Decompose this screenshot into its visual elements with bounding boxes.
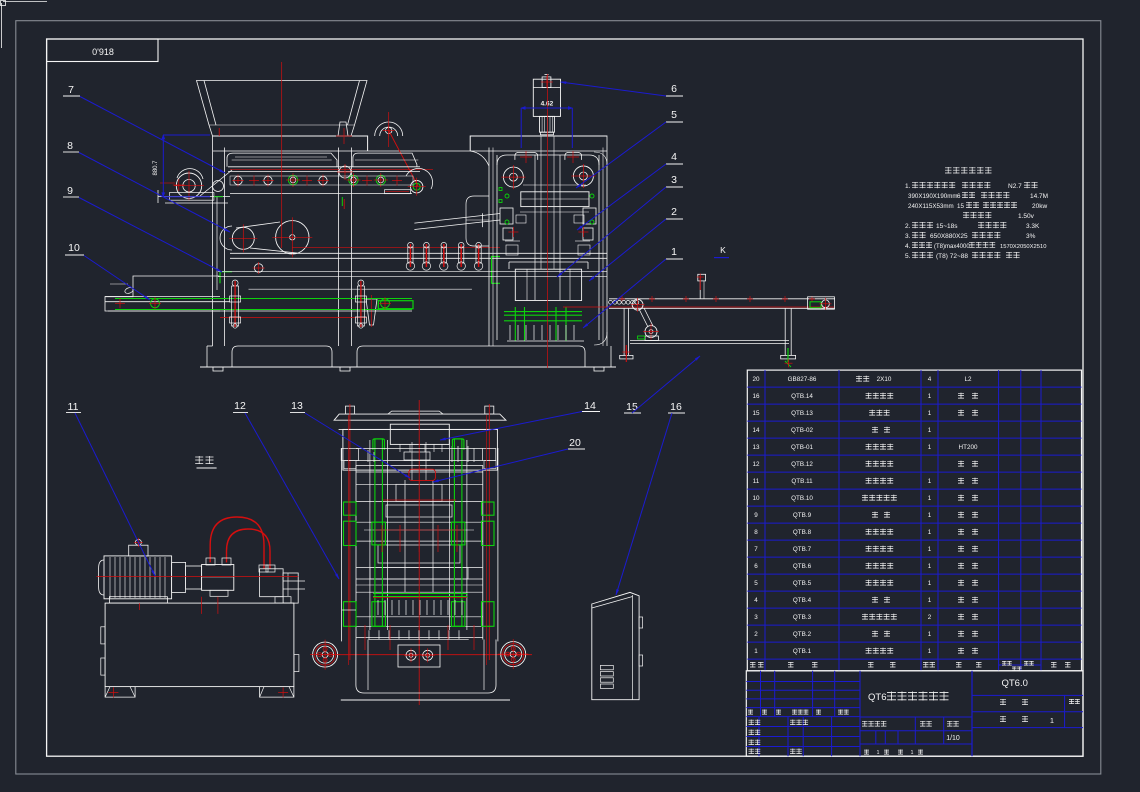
svg-text:4: 4 bbox=[671, 151, 677, 163]
svg-text:1.50v: 1.50v bbox=[1018, 213, 1035, 220]
svg-text:1: 1 bbox=[928, 444, 932, 451]
svg-text:2: 2 bbox=[928, 614, 932, 621]
svg-text:15: 15 bbox=[752, 410, 760, 417]
svg-text:2: 2 bbox=[754, 631, 758, 638]
svg-text:2.: 2. bbox=[905, 223, 911, 230]
svg-text:HT200: HT200 bbox=[959, 444, 978, 451]
svg-text:(T8) 72~88: (T8) 72~88 bbox=[936, 253, 968, 260]
svg-text:10: 10 bbox=[752, 495, 760, 502]
svg-text:3.3K: 3.3K bbox=[1026, 223, 1040, 230]
svg-text:QTB.6: QTB.6 bbox=[793, 563, 812, 570]
svg-text:QT6.0: QT6.0 bbox=[1001, 678, 1027, 689]
svg-text:QTB-02: QTB-02 bbox=[791, 427, 814, 434]
svg-text:1: 1 bbox=[928, 563, 932, 570]
svg-text:16: 16 bbox=[752, 393, 760, 400]
svg-text:QTB.10: QTB.10 bbox=[791, 495, 813, 502]
svg-text:1/10: 1/10 bbox=[946, 735, 960, 742]
svg-text:4.: 4. bbox=[905, 243, 911, 250]
svg-text:QTB.3: QTB.3 bbox=[793, 614, 812, 621]
svg-text:K: K bbox=[720, 245, 726, 255]
svg-text:6: 6 bbox=[957, 193, 961, 200]
svg-text:7: 7 bbox=[754, 546, 758, 553]
svg-text:20: 20 bbox=[752, 376, 760, 383]
svg-text:1: 1 bbox=[928, 580, 932, 587]
svg-text:1: 1 bbox=[928, 393, 932, 400]
svg-text:8: 8 bbox=[67, 140, 73, 152]
svg-text:10: 10 bbox=[68, 242, 80, 254]
svg-text:1: 1 bbox=[911, 750, 914, 756]
svg-text:QTB.1: QTB.1 bbox=[793, 648, 812, 655]
svg-text:8: 8 bbox=[754, 529, 758, 536]
svg-text:15: 15 bbox=[626, 401, 638, 413]
svg-text:14: 14 bbox=[752, 427, 760, 434]
svg-text:14.7M: 14.7M bbox=[1030, 193, 1048, 200]
svg-text:1: 1 bbox=[928, 546, 932, 553]
svg-text:9: 9 bbox=[754, 512, 758, 519]
svg-text:1: 1 bbox=[928, 410, 932, 417]
svg-text:1: 1 bbox=[928, 648, 932, 655]
svg-text:QTB.12: QTB.12 bbox=[791, 461, 813, 468]
svg-text:880.7: 880.7 bbox=[153, 160, 159, 176]
svg-text:15~18s: 15~18s bbox=[936, 223, 958, 230]
svg-text:15: 15 bbox=[957, 203, 964, 210]
svg-text:(T8)max4000: (T8)max4000 bbox=[934, 244, 970, 250]
svg-text:3%: 3% bbox=[1026, 233, 1036, 240]
svg-text:240X115X53mm: 240X115X53mm bbox=[908, 203, 954, 210]
svg-text:QTB.9: QTB.9 bbox=[793, 512, 812, 519]
svg-text:1: 1 bbox=[928, 597, 932, 604]
svg-text:3: 3 bbox=[671, 174, 677, 186]
svg-text:13: 13 bbox=[291, 400, 303, 412]
svg-text:2: 2 bbox=[671, 206, 677, 218]
svg-text:650X880X25: 650X880X25 bbox=[930, 233, 968, 240]
svg-text:3: 3 bbox=[754, 614, 758, 621]
svg-text:GB827-86: GB827-86 bbox=[788, 376, 817, 383]
svg-text:1: 1 bbox=[928, 495, 932, 502]
svg-text:20: 20 bbox=[569, 437, 581, 449]
svg-text:14: 14 bbox=[584, 400, 596, 412]
svg-text:2X10: 2X10 bbox=[877, 376, 892, 383]
svg-text:4: 4 bbox=[754, 597, 758, 604]
svg-text:6: 6 bbox=[671, 83, 677, 95]
svg-text:N2.7: N2.7 bbox=[1008, 183, 1022, 190]
svg-text:5.: 5. bbox=[905, 253, 911, 260]
svg-text:1: 1 bbox=[671, 246, 677, 258]
svg-text:12: 12 bbox=[752, 461, 760, 468]
svg-text:QTB.8: QTB.8 bbox=[793, 529, 812, 536]
svg-text:QTB.11: QTB.11 bbox=[791, 478, 813, 485]
svg-text:QTB.5: QTB.5 bbox=[793, 580, 812, 587]
svg-text:11: 11 bbox=[753, 478, 760, 485]
svg-text:6: 6 bbox=[754, 563, 758, 570]
svg-text:13: 13 bbox=[752, 444, 760, 451]
svg-text:5: 5 bbox=[671, 109, 677, 121]
svg-text:1570X2050X2510: 1570X2050X2510 bbox=[1000, 244, 1046, 250]
svg-text:390X190X190mm: 390X190X190mm bbox=[908, 193, 958, 200]
svg-text:1: 1 bbox=[928, 512, 932, 519]
svg-text:0'918: 0'918 bbox=[92, 47, 114, 57]
svg-text:12: 12 bbox=[234, 400, 246, 412]
svg-text:20kw: 20kw bbox=[1032, 203, 1047, 210]
svg-text:QTB.14: QTB.14 bbox=[791, 393, 813, 400]
svg-text:QTB.7: QTB.7 bbox=[793, 546, 812, 553]
svg-text:1: 1 bbox=[928, 427, 932, 434]
svg-text:QTB.4: QTB.4 bbox=[793, 597, 812, 604]
svg-text:QT6: QT6 bbox=[868, 692, 886, 703]
svg-text:1: 1 bbox=[928, 478, 932, 485]
svg-text:QTB.2: QTB.2 bbox=[793, 631, 812, 638]
svg-text:9: 9 bbox=[67, 185, 73, 197]
svg-text:QTB-01: QTB-01 bbox=[791, 444, 814, 451]
svg-text:5: 5 bbox=[754, 580, 758, 587]
svg-text:1: 1 bbox=[754, 648, 758, 655]
svg-text:1: 1 bbox=[877, 750, 880, 756]
svg-text:11: 11 bbox=[68, 401, 79, 413]
svg-text:L2: L2 bbox=[964, 376, 972, 383]
svg-text:4: 4 bbox=[928, 376, 932, 383]
svg-text:7: 7 bbox=[68, 84, 74, 96]
svg-text:1.: 1. bbox=[905, 183, 911, 190]
svg-text:1: 1 bbox=[1050, 716, 1054, 725]
svg-text:1: 1 bbox=[928, 529, 932, 536]
svg-text:3.: 3. bbox=[905, 233, 911, 240]
svg-text:1: 1 bbox=[928, 631, 932, 638]
svg-text:QTB.13: QTB.13 bbox=[791, 410, 813, 417]
svg-text:16: 16 bbox=[670, 401, 682, 413]
